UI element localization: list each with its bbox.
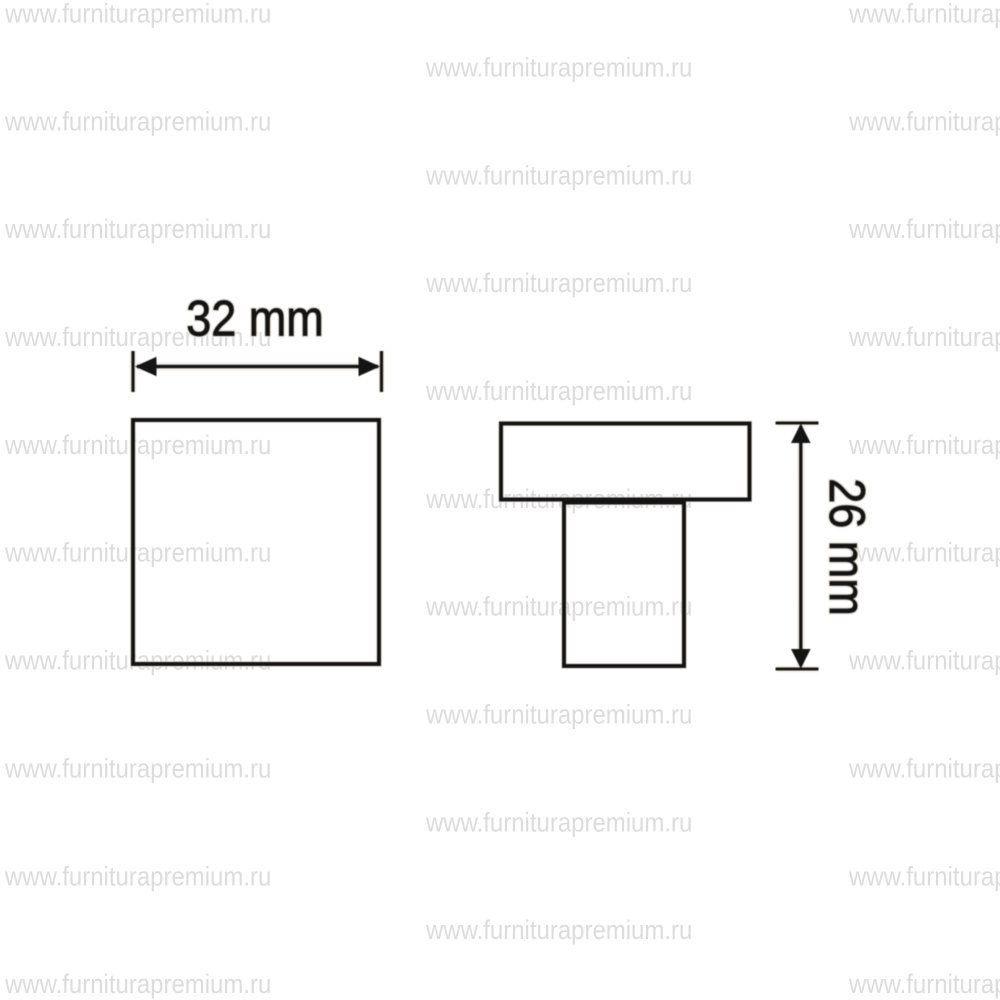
svg-text:www.furniturapremium.ru: www.furniturapremium.ru	[4, 215, 271, 245]
svg-text:www.furniturapremium.ru: www.furniturapremium.ru	[4, 107, 271, 137]
svg-text:www.furniturapremium.ru: www.furniturapremium.ru	[4, 0, 271, 29]
svg-text:www.furniturapremium.ru: www.furniturapremium.ru	[425, 916, 692, 946]
svg-text:www.furniturapremium.ru: www.furniturapremium.ru	[4, 970, 271, 1000]
svg-text:www.furniturapremium.ru: www.furniturapremium.ru	[425, 808, 692, 838]
svg-text:www.furniturapremium.ru: www.furniturapremium.ru	[848, 862, 1000, 892]
svg-text:www.furniturapremium.ru: www.furniturapremium.ru	[848, 0, 1000, 29]
svg-text:www.furniturapremium.ru: www.furniturapremium.ru	[425, 53, 692, 83]
svg-text:www.furniturapremium.ru: www.furniturapremium.ru	[848, 215, 1000, 245]
svg-text:www.furniturapremium.ru: www.furniturapremium.ru	[425, 700, 692, 730]
svg-text:www.furniturapremium.ru: www.furniturapremium.ru	[4, 754, 271, 784]
svg-text:www.furniturapremium.ru: www.furniturapremium.ru	[848, 323, 1000, 353]
svg-text:www.furniturapremium.ru: www.furniturapremium.ru	[425, 269, 692, 299]
svg-text:www.furniturapremium.ru: www.furniturapremium.ru	[848, 646, 1000, 676]
svg-text:www.furniturapremium.ru: www.furniturapremium.ru	[848, 754, 1000, 784]
svg-text:www.furniturapremium.ru: www.furniturapremium.ru	[848, 107, 1000, 137]
svg-text:www.furniturapremium.ru: www.furniturapremium.ru	[4, 862, 271, 892]
svg-text:www.furniturapremium.ru: www.furniturapremium.ru	[425, 161, 692, 191]
svg-text:32 mm: 32 mm	[186, 291, 323, 347]
svg-text:26 mm: 26 mm	[818, 478, 874, 615]
svg-text:www.furniturapremium.ru: www.furniturapremium.ru	[848, 970, 1000, 1000]
svg-text:www.furniturapremium.ru: www.furniturapremium.ru	[4, 538, 271, 568]
svg-text:www.furniturapremium.ru: www.furniturapremium.ru	[848, 431, 1000, 461]
svg-text:www.furniturapremium.ru: www.furniturapremium.ru	[425, 377, 692, 407]
svg-text:www.furniturapremium.ru: www.furniturapremium.ru	[4, 431, 271, 461]
svg-text:www.furniturapremium.ru: www.furniturapremium.ru	[425, 592, 692, 622]
